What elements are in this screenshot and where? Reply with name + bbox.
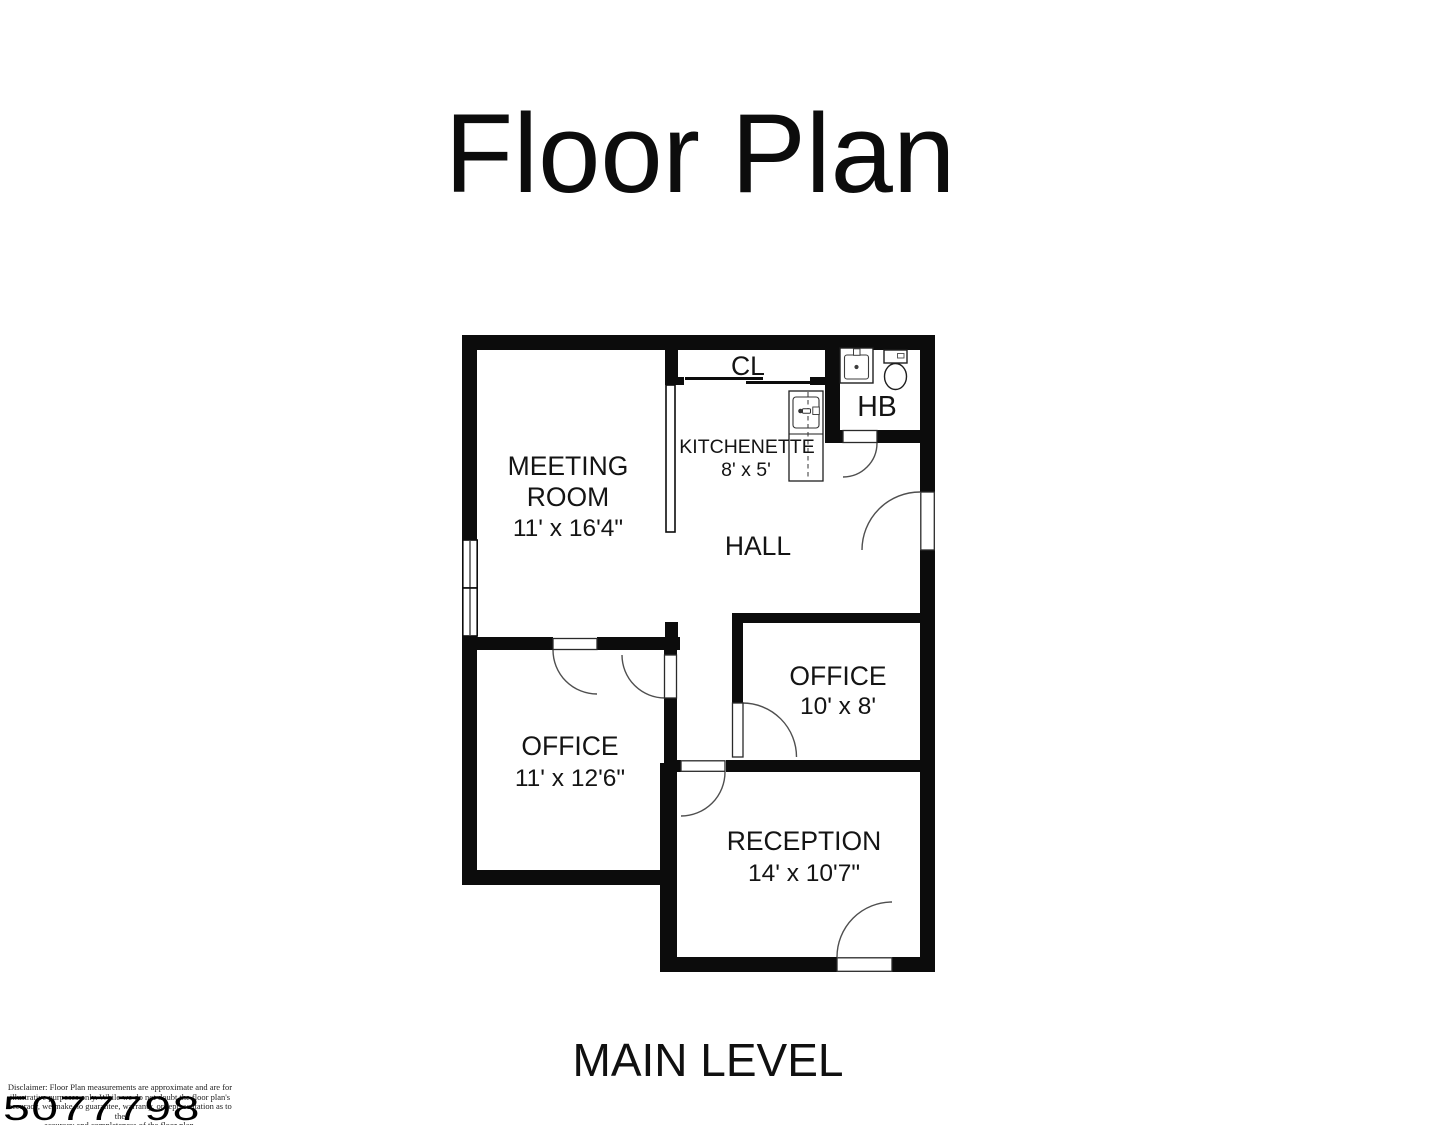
wall-hall-office-upper-stub: [664, 650, 677, 655]
closet-label: CL: [731, 351, 765, 381]
toilet-bowl: [885, 364, 907, 390]
level-label: MAIN LEVEL: [573, 1037, 844, 1083]
kitchen-faucet-spout: [803, 409, 811, 414]
door-swing-arc: [681, 772, 725, 816]
door-hall-to-halfbath: [843, 431, 877, 478]
door-meeting-to-office: [553, 639, 597, 695]
wall-closet-jamb-left: [678, 377, 684, 385]
office-lower-dimensions: 11' x 12'6": [515, 765, 625, 792]
sliding-door-track-back: [746, 381, 810, 384]
meeting-room-dimensions: 11' x 16'4": [513, 515, 623, 542]
wall-closet-left-stub: [665, 350, 678, 385]
doors: [553, 431, 934, 972]
wall-kitchenette-right: [825, 335, 840, 430]
wall-office-upper-bottom: [726, 760, 935, 772]
page-title: Floor Plan: [445, 98, 955, 210]
door-swing-arc: [743, 703, 797, 757]
reception-label: RECEPTION: [727, 826, 882, 856]
door-leaf: [553, 639, 597, 650]
door-swing-arc: [843, 443, 877, 477]
partition-half-wall: [666, 385, 675, 532]
wall-reception-left: [660, 763, 677, 972]
wall-reception-bottom-left: [660, 957, 837, 972]
door-swing-arc: [862, 492, 920, 550]
office-lower-label: OFFICE: [521, 731, 618, 761]
door-leaf: [921, 492, 935, 550]
door-hall-to-office-lower: [622, 655, 677, 698]
wall-halfbath-bottom-left: [825, 430, 843, 443]
office-upper-dimensions: 10' x 8': [800, 693, 876, 720]
kitchenette-label: KITCHENETTE: [679, 436, 814, 458]
door-leaf: [837, 958, 892, 972]
door-leaf: [681, 761, 725, 772]
door-swing-arc: [837, 902, 892, 957]
door-swing-arc: [553, 650, 597, 694]
door-leaf: [843, 431, 877, 443]
meeting-room-label: MEETING: [508, 451, 629, 481]
wall-meeting-bottom-right: [597, 637, 680, 650]
wall-left-upper: [462, 350, 477, 540]
wall-meeting-bottom-left: [477, 637, 553, 650]
bathroom-sink-icon: [840, 348, 873, 383]
hall-label: HALL: [725, 531, 791, 561]
reception-dimensions: 14' x 10'7": [748, 860, 860, 887]
halfbath-label: HB: [857, 391, 897, 423]
floor-plan-page: Floor Plan: [0, 0, 1455, 1125]
door-entry-reception: [837, 902, 892, 971]
wall-hall-office-lower: [664, 698, 677, 763]
halfbath-fixtures: [840, 348, 907, 390]
sink-faucet: [854, 349, 861, 356]
wall-meeting-right-stub: [665, 622, 678, 638]
toilet-icon: [884, 350, 907, 390]
floor-plan-drawing: MEETING ROOM 11' x 16'4" CL KITCHENETTE …: [440, 320, 960, 985]
windows: [463, 540, 477, 636]
wall-closet-jamb-right: [810, 377, 825, 385]
office-upper-label: OFFICE: [789, 661, 886, 691]
listing-number: 5077798: [3, 1092, 201, 1125]
wall-left-lower: [462, 636, 477, 885]
wall-office-upper-top: [732, 613, 935, 623]
door-leaf: [665, 655, 677, 698]
wall-office-upper-left: [732, 623, 743, 703]
door-swing-arc: [622, 655, 665, 698]
wall-reception-bottom-right: [892, 957, 935, 972]
meeting-room-label-line2: ROOM: [527, 482, 609, 512]
wall-office-lower-bottom: [462, 870, 677, 885]
kitchen-soap-dish: [813, 407, 820, 415]
wall-right-upper: [920, 350, 935, 492]
door-hall-to-office-upper: [733, 703, 797, 757]
toilet-flush-button: [898, 354, 905, 359]
door-leaf: [733, 703, 744, 757]
door-hall-to-reception: [681, 761, 725, 816]
sink-drain: [854, 365, 858, 369]
door-entry-hall: [862, 492, 934, 550]
kitchenette-dimensions: 8' x 5': [721, 459, 771, 481]
